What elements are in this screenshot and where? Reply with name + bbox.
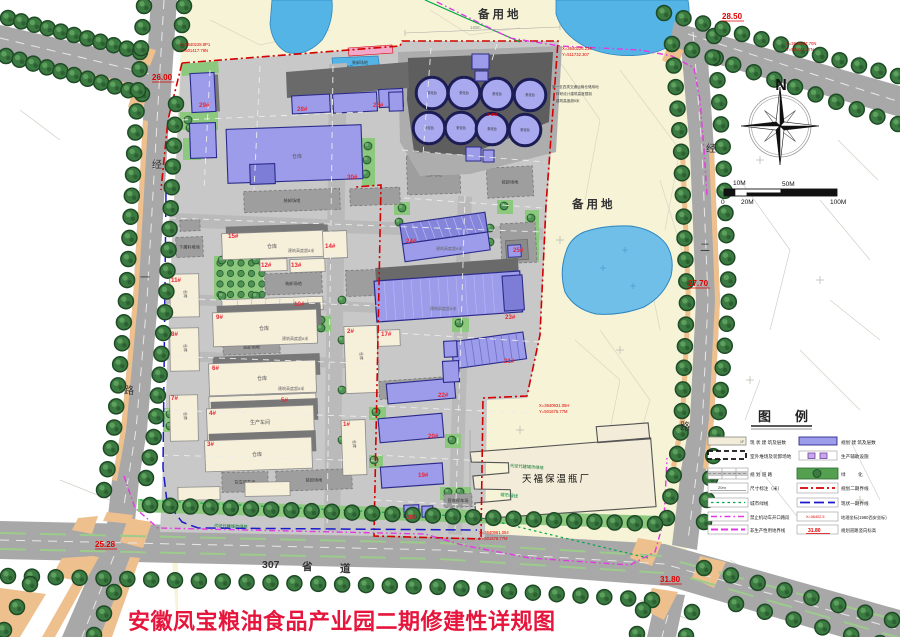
svg-text:生产辅助设施: 生产辅助设施 bbox=[841, 453, 869, 460]
svg-text:现 状 建 筑及层数: 现 状 建 筑及层数 bbox=[750, 439, 786, 446]
svg-text:N: N bbox=[775, 77, 787, 94]
svg-text:下属料堆场: 下属料堆场 bbox=[179, 244, 200, 251]
svg-text:3#: 3# bbox=[207, 441, 214, 448]
svg-text:规 划 道 路: 规 划 道 路 bbox=[750, 471, 773, 478]
svg-text:1#: 1# bbox=[343, 421, 350, 428]
svg-text:条泥台: 条泥台 bbox=[427, 90, 437, 95]
svg-text:生产车间: 生产车间 bbox=[250, 419, 270, 426]
svg-text:条泥台: 条泥台 bbox=[424, 125, 434, 130]
svg-text:城市绿线: 城市绿线 bbox=[750, 500, 769, 507]
svg-text:Y=501675.77M: Y=501675.77M bbox=[539, 409, 568, 414]
svg-text:30#: 30# bbox=[347, 174, 358, 181]
svg-text:一: 一 bbox=[140, 273, 150, 284]
svg-text:X=3640931.05H: X=3640931.05H bbox=[539, 403, 569, 408]
svg-text:26.00: 26.00 bbox=[152, 73, 173, 82]
svg-text:路: 路 bbox=[124, 384, 134, 397]
svg-text:11#: 11# bbox=[171, 277, 182, 284]
svg-text:仓库: 仓库 bbox=[183, 344, 189, 352]
svg-text:13#: 13# bbox=[291, 262, 302, 269]
svg-text:19#: 19# bbox=[418, 472, 429, 479]
svg-text:规划道路竖向标高: 规划道路竖向标高 bbox=[841, 527, 877, 534]
svg-text:仓库: 仓库 bbox=[259, 325, 269, 332]
svg-text:经: 经 bbox=[152, 158, 162, 171]
svg-text:Y=511732.307: Y=511732.307 bbox=[562, 52, 590, 57]
svg-text:建筑高度超8米: 建筑高度超8米 bbox=[278, 385, 304, 391]
svg-text:100M: 100M bbox=[830, 199, 846, 206]
svg-text:装卸场地: 装卸场地 bbox=[306, 477, 324, 484]
svg-text:天福保温瓶厂: 天福保温瓶厂 bbox=[522, 473, 591, 485]
svg-text:18#: 18# bbox=[406, 514, 417, 521]
svg-text:17#: 17# bbox=[381, 331, 392, 338]
svg-text:化: 化 bbox=[858, 471, 863, 478]
svg-text:绿: 绿 bbox=[841, 471, 846, 477]
svg-text:X=3640226.234: X=3640226.234 bbox=[562, 46, 592, 51]
svg-text:31.80: 31.80 bbox=[660, 575, 681, 584]
svg-text:X=3640237.70N: X=3640237.70N bbox=[786, 41, 816, 46]
svg-text:仓库: 仓库 bbox=[183, 290, 189, 298]
svg-text:条泥台: 条泥台 bbox=[459, 90, 469, 95]
svg-text:仓库: 仓库 bbox=[257, 375, 267, 382]
svg-text:140m: 140m bbox=[470, 25, 481, 30]
svg-text:图: 图 bbox=[758, 409, 771, 424]
svg-text:31.80: 31.80 bbox=[808, 528, 821, 534]
svg-text:X=3640228.8P1: X=3640228.8P1 bbox=[180, 42, 211, 47]
svg-text:条泥台: 条泥台 bbox=[456, 125, 466, 130]
svg-text:仓库: 仓库 bbox=[292, 153, 302, 160]
svg-text:规划二期界线: 规划二期界线 bbox=[841, 485, 869, 492]
svg-text:6#: 6# bbox=[212, 365, 219, 372]
svg-text:Y=501678.77M: Y=501678.77M bbox=[479, 536, 508, 541]
svg-text:建筑高度超8米: 建筑高度超8米 bbox=[436, 245, 462, 251]
svg-text:Y=501611.37N: Y=501611.37N bbox=[786, 47, 814, 52]
svg-text:14#: 14# bbox=[325, 243, 336, 250]
svg-text:规划 建 筑及层数: 规划 建 筑及层数 bbox=[841, 439, 876, 446]
svg-text:建筑高度超8米: 建筑高度超8米 bbox=[282, 335, 308, 341]
svg-text:例: 例 bbox=[795, 409, 808, 424]
svg-text:尺寸标注（米）: 尺寸标注（米） bbox=[750, 485, 782, 492]
svg-text:条泥台: 条泥台 bbox=[487, 126, 497, 131]
svg-text:24#: 24# bbox=[406, 238, 417, 245]
svg-text:仓库: 仓库 bbox=[252, 451, 262, 458]
svg-text:10M: 10M bbox=[733, 180, 746, 187]
svg-text:仓库: 仓库 bbox=[267, 243, 277, 250]
svg-text:15#: 15# bbox=[228, 233, 239, 240]
svg-text:安徽凤宝粮油食品产业园二期修建性详规图: 安徽凤宝粮油食品产业园二期修建性详规图 bbox=[128, 609, 556, 634]
svg-text:条泥台: 条泥台 bbox=[525, 92, 535, 97]
svg-text:0: 0 bbox=[721, 199, 725, 206]
svg-text:X=36402.5: X=36402.5 bbox=[806, 515, 824, 519]
svg-text:22#: 22# bbox=[438, 392, 449, 399]
svg-text:省: 省 bbox=[301, 560, 313, 573]
svg-text:9#: 9# bbox=[216, 314, 223, 321]
svg-text:20m: 20m bbox=[718, 485, 726, 490]
svg-text:备用地: 备用地 bbox=[571, 197, 616, 211]
svg-text:Y=501417.78N: Y=501417.78N bbox=[180, 48, 208, 53]
svg-text:条泥台: 条泥台 bbox=[492, 91, 502, 96]
svg-text:27.70: 27.70 bbox=[688, 279, 709, 288]
svg-text:X=3640961.054: X=3640961.054 bbox=[479, 530, 509, 535]
svg-text:备用地: 备用地 bbox=[477, 7, 522, 21]
svg-text:室外堆场及装卸场地: 室外堆场及装卸场地 bbox=[750, 453, 792, 460]
svg-text:条泥台: 条泥台 bbox=[520, 127, 530, 132]
svg-text:10#: 10# bbox=[294, 301, 305, 308]
svg-text:26#: 26# bbox=[373, 102, 384, 109]
svg-text:21#: 21# bbox=[504, 358, 515, 365]
svg-text:28#: 28# bbox=[297, 106, 308, 113]
svg-text:地理坐标(1980西安坐标): 地理坐标(1980西安坐标) bbox=[841, 514, 887, 521]
svg-text:28.50: 28.50 bbox=[722, 12, 743, 21]
svg-text:现状一期界线: 现状一期界线 bbox=[841, 500, 869, 507]
svg-text:29#: 29# bbox=[199, 102, 210, 109]
svg-text:仓库: 仓库 bbox=[352, 440, 358, 448]
svg-text:1F: 1F bbox=[740, 440, 744, 444]
svg-text:5#: 5# bbox=[281, 397, 288, 404]
svg-text:经: 经 bbox=[706, 142, 716, 155]
svg-text:装卸场地: 装卸场地 bbox=[284, 197, 302, 204]
svg-text:仓库: 仓库 bbox=[359, 352, 365, 360]
svg-text:路: 路 bbox=[680, 420, 690, 433]
svg-text:7#: 7# bbox=[171, 395, 178, 402]
svg-text:20#: 20# bbox=[428, 433, 439, 440]
svg-text:25#: 25# bbox=[513, 247, 524, 254]
svg-text:第一至四类交通运输仓储用地: 第一至四类交通运输仓储用地 bbox=[552, 84, 599, 89]
svg-text:建筑高度超8米: 建筑高度超8米 bbox=[556, 98, 580, 103]
svg-text:2-4M: 2-4M bbox=[487, 112, 498, 117]
svg-text:道: 道 bbox=[340, 562, 351, 575]
svg-text:307: 307 bbox=[262, 559, 280, 571]
svg-text:12#: 12# bbox=[261, 262, 272, 269]
svg-text:禁止机动车开口路段: 禁止机动车开口路段 bbox=[750, 514, 790, 521]
svg-text:50M: 50M bbox=[782, 181, 795, 188]
svg-text:科研设计建筑高度限制: 科研设计建筑高度限制 bbox=[556, 91, 592, 96]
svg-text:营车停车场: 营车停车场 bbox=[448, 497, 469, 504]
svg-text:装卸场地: 装卸场地 bbox=[502, 179, 520, 186]
svg-text:25.28: 25.28 bbox=[95, 540, 116, 549]
svg-text:装卸场地: 装卸场地 bbox=[352, 59, 368, 65]
svg-text:仓库: 仓库 bbox=[183, 412, 189, 420]
svg-text:建筑高度超8米: 建筑高度超8米 bbox=[430, 305, 456, 311]
svg-text:4#: 4# bbox=[209, 410, 216, 417]
svg-text:二: 二 bbox=[700, 243, 710, 254]
svg-text:2#: 2# bbox=[347, 328, 354, 335]
svg-text:8#: 8# bbox=[171, 331, 178, 338]
svg-text:23#: 23# bbox=[505, 314, 516, 321]
svg-text:20M: 20M bbox=[741, 199, 754, 206]
svg-text:非生产性用地界线: 非生产性用地界线 bbox=[750, 527, 786, 534]
svg-text:装卸场地: 装卸场地 bbox=[285, 280, 303, 287]
svg-text:建筑高度超8米: 建筑高度超8米 bbox=[288, 247, 314, 253]
